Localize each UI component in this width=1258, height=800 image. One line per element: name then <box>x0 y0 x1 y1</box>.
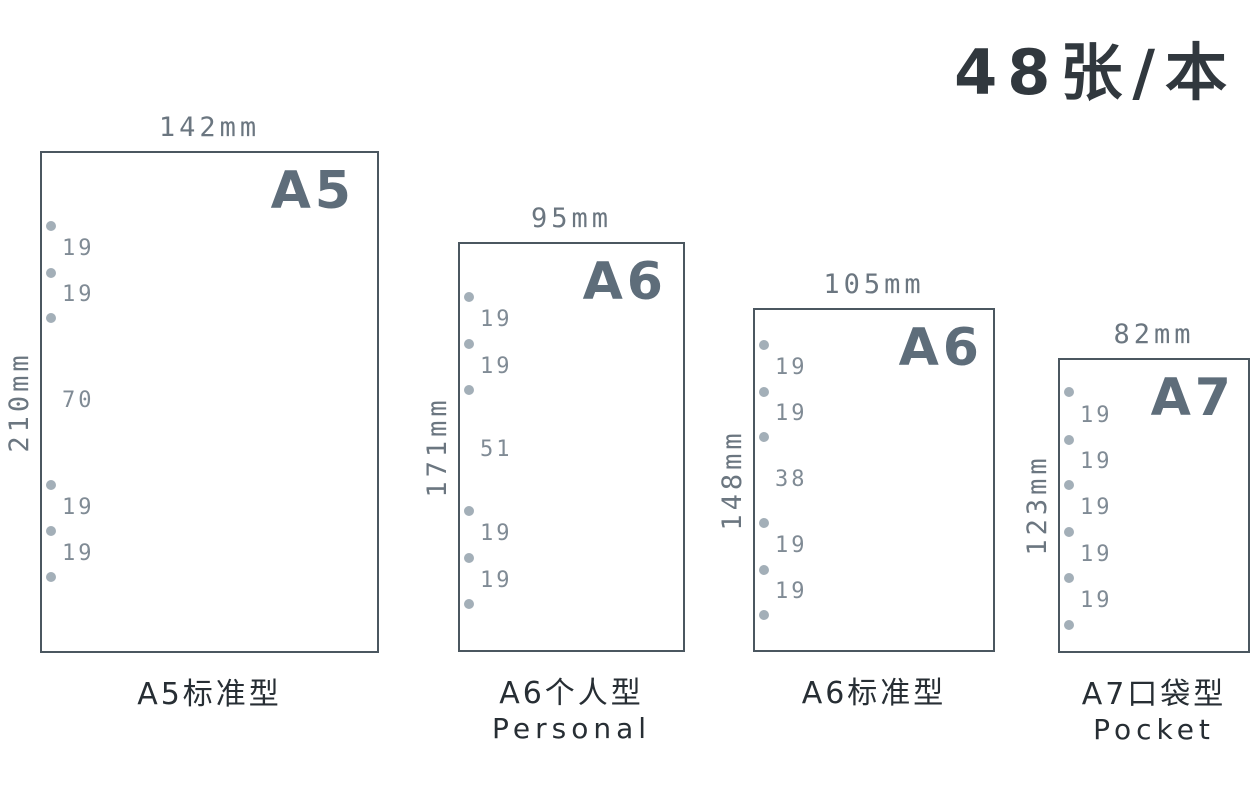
binder-hole-icon <box>759 565 769 575</box>
binder-hole-icon <box>1064 387 1074 397</box>
sheet-a6-personal: 95mm 171mm A6 19 19 51 19 19 A6个人型 Perso… <box>458 242 685 652</box>
hole-gap-label: 19 <box>775 400 808 428</box>
height-dimension-label: 171mm <box>423 387 453 507</box>
hole-gap-label: 19 <box>1080 541 1113 569</box>
binder-hole-icon <box>46 313 56 323</box>
width-dimension-label: 105mm <box>755 270 993 300</box>
sheet-caption: A5标准型 <box>40 678 379 712</box>
height-dimension-label: 123mm <box>1023 445 1053 565</box>
width-dimension-label: 95mm <box>460 204 683 234</box>
sheet-a6-standard: 105mm 148mm A6 19 19 38 19 19 A6标准型 <box>753 308 995 652</box>
sheet-a7-pocket: 82mm 123mm A7 19 19 19 19 19 A7口袋型 Pocke… <box>1058 358 1250 653</box>
binder-hole-icon <box>759 387 769 397</box>
sheet-caption: A6标准型 <box>753 677 995 711</box>
binder-hole-icon <box>464 506 474 516</box>
hole-gap-label: 19 <box>480 520 513 548</box>
hole-gap-label: 19 <box>62 281 95 309</box>
binder-hole-icon <box>46 572 56 582</box>
binder-hole-icon <box>1064 620 1074 630</box>
hole-gap-label: 19 <box>480 306 513 334</box>
hole-gap-label: 70 <box>62 387 95 415</box>
hole-gap-label: 19 <box>1080 402 1113 430</box>
paper-size-label: A6 <box>899 322 983 374</box>
sheet-a5-standard: 142mm 210mm A5 19 19 70 19 19 A5标准型 <box>40 151 379 653</box>
hole-gap-label: 19 <box>775 578 808 606</box>
binder-hole-icon <box>46 480 56 490</box>
hole-gap-label: 19 <box>1080 587 1113 615</box>
hole-gap-label: 19 <box>480 567 513 595</box>
paper-size-label: A5 <box>271 165 355 217</box>
sheet-caption: A7口袋型 <box>1058 678 1250 712</box>
width-dimension-label: 82mm <box>1060 320 1248 350</box>
hole-gap-label: 19 <box>775 354 808 382</box>
paper-sizes-diagram: 48张/本 142mm 210mm A5 19 19 70 19 19 A5标准… <box>0 0 1258 800</box>
binder-hole-icon <box>759 432 769 442</box>
paper-size-label: A7 <box>1151 372 1235 424</box>
binder-hole-icon <box>46 268 56 278</box>
binder-hole-icon <box>464 385 474 395</box>
binder-hole-icon <box>1064 527 1074 537</box>
hole-gap-label: 38 <box>775 466 808 494</box>
binder-hole-icon <box>1064 573 1074 583</box>
binder-hole-icon <box>46 526 56 536</box>
hole-gap-label: 51 <box>480 436 513 464</box>
sheet-caption-english: Pocket <box>1058 714 1250 746</box>
binder-hole-icon <box>759 610 769 620</box>
hole-gap-label: 19 <box>1080 494 1113 522</box>
hole-gap-label: 19 <box>1080 448 1113 476</box>
binder-hole-icon <box>759 340 769 350</box>
height-dimension-label: 210mm <box>5 342 35 462</box>
binder-hole-icon <box>464 339 474 349</box>
binder-hole-icon <box>464 292 474 302</box>
sheet-caption-english: Personal <box>458 713 685 745</box>
binder-hole-icon <box>464 553 474 563</box>
hole-gap-label: 19 <box>62 540 95 568</box>
height-dimension-label: 148mm <box>718 420 748 540</box>
width-dimension-label: 142mm <box>42 113 377 143</box>
binder-hole-icon <box>46 221 56 231</box>
hole-gap-label: 19 <box>62 494 95 522</box>
hole-gap-label: 19 <box>62 235 95 263</box>
binder-hole-icon <box>1064 435 1074 445</box>
hole-gap-label: 19 <box>775 532 808 560</box>
hole-gap-label: 19 <box>480 353 513 381</box>
binder-hole-icon <box>1064 480 1074 490</box>
page-title: 48张/本 <box>954 22 1237 112</box>
sheet-caption: A6个人型 <box>458 677 685 711</box>
binder-hole-icon <box>464 599 474 609</box>
binder-hole-icon <box>759 518 769 528</box>
paper-size-label: A6 <box>583 256 667 308</box>
